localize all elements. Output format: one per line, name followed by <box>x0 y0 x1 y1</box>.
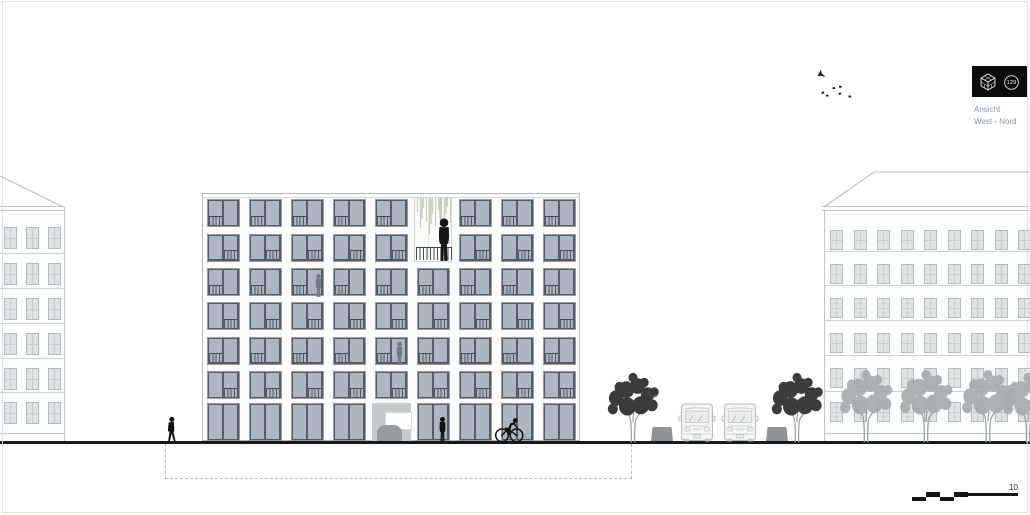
ground-window-cell <box>333 403 366 441</box>
glass-pane <box>224 339 238 363</box>
french-balcony-railing <box>377 216 390 225</box>
glass-pane <box>434 339 448 363</box>
scale-rule <box>968 493 1018 496</box>
window-cell <box>207 337 240 365</box>
window-cell <box>207 234 240 262</box>
parked-car <box>722 404 758 441</box>
window-cell <box>333 199 366 227</box>
neighbor-window <box>854 264 867 284</box>
glass-pane <box>377 373 391 397</box>
glass-pane <box>293 373 307 397</box>
neighbor-window <box>4 298 17 320</box>
neighbor-window <box>995 230 1008 250</box>
glass-pane <box>293 236 307 260</box>
window-cell <box>207 199 240 227</box>
scale-segment <box>940 497 954 502</box>
neighbor-window <box>995 264 1008 284</box>
scale-label: 10 <box>996 483 1018 492</box>
glass-pane <box>545 236 559 260</box>
french-balcony-railing <box>350 388 363 397</box>
french-balcony-railing <box>419 285 432 294</box>
window-cell <box>333 371 366 399</box>
french-balcony-railing <box>209 285 222 294</box>
glass-pane <box>503 405 517 439</box>
glass-pane <box>419 405 433 439</box>
window-cell <box>459 371 492 399</box>
elevation-drawing-canvas: 129 Ansicht West - Nord 10 <box>0 0 1030 515</box>
neighbor-window <box>26 333 39 355</box>
building-entrance <box>372 403 412 441</box>
glass-pane <box>518 201 532 225</box>
bird-icon <box>839 86 842 88</box>
french-balcony-railing <box>476 250 489 259</box>
french-balcony-railing <box>545 353 558 362</box>
neighbor-window <box>1018 368 1030 388</box>
french-balcony-railing <box>209 216 222 225</box>
neighbor-window <box>995 298 1008 318</box>
parked-car <box>679 404 715 441</box>
neighbor-window <box>877 402 890 422</box>
window-cell <box>375 371 408 399</box>
scale-segment <box>912 497 926 502</box>
window-cell <box>291 199 324 227</box>
ground-window-cell <box>417 403 450 441</box>
neighbor-window <box>854 368 867 388</box>
window-cell <box>207 302 240 330</box>
glass-pane <box>308 201 322 225</box>
bird-icon <box>832 87 835 89</box>
glass-pane <box>224 201 238 225</box>
french-balcony-railing <box>434 319 447 328</box>
neighbor-window <box>924 298 937 318</box>
window-cell <box>543 337 576 365</box>
glass-pane <box>545 304 559 328</box>
window-cell <box>207 371 240 399</box>
window-cell <box>501 199 534 227</box>
window-cell <box>417 302 450 330</box>
window-cell <box>249 199 282 227</box>
ground-window-cell <box>207 403 240 441</box>
neighbor-window <box>877 298 890 318</box>
glass-pane <box>266 405 280 439</box>
neighbor-window <box>877 264 890 284</box>
french-balcony-railing <box>308 319 321 328</box>
hanging-plants <box>415 198 453 240</box>
neighbor-window <box>971 298 984 318</box>
neighbor-window <box>901 230 914 250</box>
neighbor-window <box>877 368 890 388</box>
right-cornice-line <box>822 210 1030 211</box>
glass-pane <box>392 339 406 363</box>
glass-pane <box>461 236 475 260</box>
window-cell <box>375 234 408 262</box>
glass-pane <box>350 270 364 294</box>
ground-window-cell <box>459 403 492 441</box>
glass-pane <box>350 405 364 439</box>
french-balcony-railing <box>335 285 348 294</box>
ground-window-cell <box>501 403 534 441</box>
french-balcony-railing <box>266 319 279 328</box>
floor-line <box>824 355 1030 356</box>
right-roof-line <box>824 172 1030 207</box>
glass-pane <box>251 405 265 439</box>
neighbor-window <box>877 230 890 250</box>
bird-icon <box>821 92 824 94</box>
floor-line <box>824 251 1030 252</box>
view-title-block: 129 <box>972 66 1027 97</box>
neighbor-window <box>854 298 867 318</box>
glass-pane <box>503 373 517 397</box>
glass-pane <box>545 405 559 439</box>
glass-pane <box>308 339 322 363</box>
glass-pane <box>293 405 307 439</box>
glass-pane <box>476 270 490 294</box>
french-balcony-railing <box>377 353 390 362</box>
glass-pane <box>434 270 448 294</box>
window-cell <box>375 337 408 365</box>
french-balcony-railing <box>461 216 474 225</box>
french-balcony-railing <box>251 353 264 362</box>
french-balcony-railing <box>503 216 516 225</box>
bird-icon <box>848 95 851 97</box>
neighbor-window <box>901 333 914 353</box>
sheet-number: 129 <box>1007 79 1017 85</box>
neighbor-window <box>948 298 961 318</box>
glass-pane <box>377 304 391 328</box>
glass-pane <box>560 339 574 363</box>
glass-pane <box>209 373 223 397</box>
neighbor-window <box>48 227 61 249</box>
window-cell <box>333 337 366 365</box>
french-balcony-railing <box>224 319 237 328</box>
glass-pane <box>350 201 364 225</box>
neighbor-window <box>971 230 984 250</box>
french-balcony-railing <box>266 250 279 259</box>
view-label: Ansicht West - Nord <box>974 104 1017 127</box>
french-balcony-railing <box>560 319 573 328</box>
neighbor-window <box>971 333 984 353</box>
glass-pane <box>461 373 475 397</box>
french-balcony-railing <box>224 388 237 397</box>
neighbor-window <box>48 333 61 355</box>
window-cell <box>417 371 450 399</box>
neighbor-window <box>877 333 890 353</box>
neighbor-window <box>948 368 961 388</box>
main-parapet-line <box>202 197 580 198</box>
glass-pane <box>461 304 475 328</box>
left-cornice-line <box>0 206 64 207</box>
french-balcony-railing <box>461 285 474 294</box>
glass-pane <box>224 405 238 439</box>
birds-flock <box>818 70 852 98</box>
neighbor-window <box>4 402 17 424</box>
window-cell <box>333 302 366 330</box>
french-balcony-railing <box>350 319 363 328</box>
glass-pane <box>434 405 448 439</box>
bird-icon <box>826 95 829 97</box>
window-cell <box>543 302 576 330</box>
neighbor-window <box>971 402 984 422</box>
glass-pane <box>350 339 364 363</box>
bird-icon <box>838 93 841 95</box>
glass-pane <box>476 201 490 225</box>
neighbor-window <box>948 230 961 250</box>
neighbor-window <box>924 368 937 388</box>
window-cell <box>459 337 492 365</box>
glass-pane <box>560 201 574 225</box>
french-balcony-railing <box>419 353 432 362</box>
neighbor-window <box>948 402 961 422</box>
french-balcony-railing <box>293 216 306 225</box>
french-balcony-railing <box>335 216 348 225</box>
french-balcony-railing <box>308 388 321 397</box>
glass-pane <box>503 304 517 328</box>
floor-line <box>824 391 1030 392</box>
neighbor-window <box>924 402 937 422</box>
glass-pane <box>209 304 223 328</box>
window-cell <box>501 337 534 365</box>
neighbor-window <box>48 263 61 285</box>
french-balcony-railing <box>293 285 306 294</box>
ground-window-cell <box>249 403 282 441</box>
glass-pane <box>560 405 574 439</box>
glass-pane <box>476 405 490 439</box>
french-balcony-railing <box>350 250 363 259</box>
french-balcony-railing <box>518 319 531 328</box>
neighbor-window <box>901 402 914 422</box>
neighbor-window <box>854 402 867 422</box>
neighbor-window <box>830 333 843 353</box>
french-balcony-railing <box>392 319 405 328</box>
dark-tree <box>608 373 659 443</box>
neighbor-window <box>48 402 61 424</box>
french-balcony-railing <box>209 353 222 362</box>
neighbor-window <box>971 368 984 388</box>
view-label-line2: West - Nord <box>974 116 1017 128</box>
french-balcony-railing <box>392 250 405 259</box>
window-cell <box>249 371 282 399</box>
french-balcony-railing <box>335 353 348 362</box>
floor-line <box>0 323 64 324</box>
street-trees <box>608 373 823 443</box>
wireframe-cube-icon <box>978 72 998 92</box>
neighbor-window <box>1018 333 1030 353</box>
glass-pane <box>251 373 265 397</box>
neighbor-window <box>995 333 1008 353</box>
floor-line <box>0 253 64 254</box>
window-cell <box>249 302 282 330</box>
neighbor-window <box>924 264 937 284</box>
french-balcony-railing <box>476 319 489 328</box>
neighbor-window <box>1018 230 1030 250</box>
glass-pane <box>308 405 322 439</box>
window-cell <box>333 234 366 262</box>
french-balcony-railing <box>266 388 279 397</box>
french-balcony-railing <box>476 388 489 397</box>
window-cell <box>291 302 324 330</box>
window-cell <box>291 337 324 365</box>
window-cell <box>459 234 492 262</box>
glass-pane <box>377 236 391 260</box>
window-cell <box>543 371 576 399</box>
scale-segment <box>926 492 940 497</box>
window-cell <box>375 199 408 227</box>
floor-line <box>824 320 1030 321</box>
french-balcony-railing <box>251 216 264 225</box>
glass-pane <box>560 270 574 294</box>
neighbor-window <box>901 368 914 388</box>
neighbor-window <box>995 402 1008 422</box>
french-balcony-railing <box>518 250 531 259</box>
window-cell <box>543 234 576 262</box>
window-cell <box>501 234 534 262</box>
floor-line <box>0 358 64 359</box>
neighbor-window <box>830 368 843 388</box>
window-cell <box>249 234 282 262</box>
neighbor-window <box>948 333 961 353</box>
left-base-line <box>0 433 64 434</box>
glass-pane <box>335 236 349 260</box>
street-bin <box>651 427 673 442</box>
glass-pane <box>518 270 532 294</box>
window-cell <box>291 268 324 296</box>
neighbor-window <box>26 227 39 249</box>
glass-pane <box>335 304 349 328</box>
view-label-line1: Ansicht <box>974 104 1017 116</box>
window-cell <box>543 268 576 296</box>
neighbor-window <box>48 368 61 390</box>
french-balcony-railing <box>251 285 264 294</box>
neighbor-window <box>854 333 867 353</box>
entrance-object <box>377 425 403 441</box>
sheet-number-badge: 129 <box>1004 75 1018 89</box>
window-cell <box>249 268 282 296</box>
french-balcony-railing <box>308 250 321 259</box>
neighbor-window <box>948 264 961 284</box>
glass-pane <box>518 405 532 439</box>
french-balcony-railing <box>461 353 474 362</box>
glass-pane <box>293 304 307 328</box>
window-cell <box>249 337 282 365</box>
glass-pane <box>419 304 433 328</box>
french-balcony-railing <box>224 250 237 259</box>
glass-pane <box>224 270 238 294</box>
neighbor-window <box>48 298 61 320</box>
glass-pane <box>392 201 406 225</box>
neighbor-window <box>830 402 843 422</box>
balcony-railing <box>416 247 452 260</box>
window-cell <box>501 371 534 399</box>
window-cell <box>375 268 408 296</box>
glass-pane <box>503 236 517 260</box>
neighbor-window <box>901 264 914 284</box>
glass-pane <box>266 201 280 225</box>
left-roof-line <box>0 176 64 207</box>
glass-pane <box>335 373 349 397</box>
glass-pane <box>335 405 349 439</box>
window-cell <box>375 302 408 330</box>
neighbor-window <box>26 368 39 390</box>
glass-pane <box>545 373 559 397</box>
window-cell <box>291 371 324 399</box>
neighbor-window <box>995 368 1008 388</box>
glass-pane <box>476 339 490 363</box>
right-base-line <box>824 433 1030 434</box>
neighbor-window <box>854 230 867 250</box>
glass-pane <box>209 405 223 439</box>
floor-line <box>824 285 1030 286</box>
neighbor-window <box>4 227 17 249</box>
neighbor-window <box>26 263 39 285</box>
right-cornice-line <box>822 206 1030 207</box>
basement-dashed-outline <box>165 444 632 479</box>
neighbor-window <box>4 368 17 390</box>
glass-pane <box>209 236 223 260</box>
french-balcony-railing <box>392 388 405 397</box>
neighbor-window <box>901 298 914 318</box>
ground-window-cell <box>291 403 324 441</box>
neighbor-window <box>830 298 843 318</box>
glass-pane <box>392 270 406 294</box>
neighbor-window <box>1018 298 1030 318</box>
window-cell <box>459 268 492 296</box>
neighbor-window <box>924 230 937 250</box>
glass-pane <box>266 270 280 294</box>
glass-pane <box>308 270 322 294</box>
french-balcony-railing <box>503 285 516 294</box>
window-cell <box>417 268 450 296</box>
neighbor-window <box>924 333 937 353</box>
window-cell <box>417 337 450 365</box>
window-cell <box>459 199 492 227</box>
neighbor-window <box>1018 402 1030 422</box>
glass-pane <box>419 373 433 397</box>
window-cell <box>207 268 240 296</box>
window-cell <box>501 268 534 296</box>
french-balcony-railing <box>545 285 558 294</box>
french-balcony-railing <box>503 353 516 362</box>
french-balcony-railing <box>545 216 558 225</box>
glass-pane <box>266 339 280 363</box>
neighbor-window <box>4 263 17 285</box>
window-cell <box>501 302 534 330</box>
street-bin <box>766 427 788 442</box>
ground-window-cell <box>543 403 576 441</box>
french-balcony-railing <box>377 285 390 294</box>
glass-pane <box>518 339 532 363</box>
neighbor-window <box>830 230 843 250</box>
neighbor-window <box>830 264 843 284</box>
neighbor-window <box>4 333 17 355</box>
neighbor-window <box>26 402 39 424</box>
french-balcony-railing <box>518 388 531 397</box>
bird-icon <box>818 70 826 77</box>
window-cell <box>459 302 492 330</box>
window-cell <box>291 234 324 262</box>
loggia-green-balcony <box>414 197 452 262</box>
floor-line <box>0 288 64 289</box>
glass-pane <box>251 236 265 260</box>
neighbor-window <box>26 298 39 320</box>
french-balcony-railing <box>293 353 306 362</box>
window-cell <box>543 199 576 227</box>
french-balcony-railing <box>560 388 573 397</box>
french-balcony-railing <box>560 250 573 259</box>
window-cell <box>333 268 366 296</box>
glass-pane <box>461 405 475 439</box>
french-balcony-railing <box>434 388 447 397</box>
neighbor-window <box>971 264 984 284</box>
